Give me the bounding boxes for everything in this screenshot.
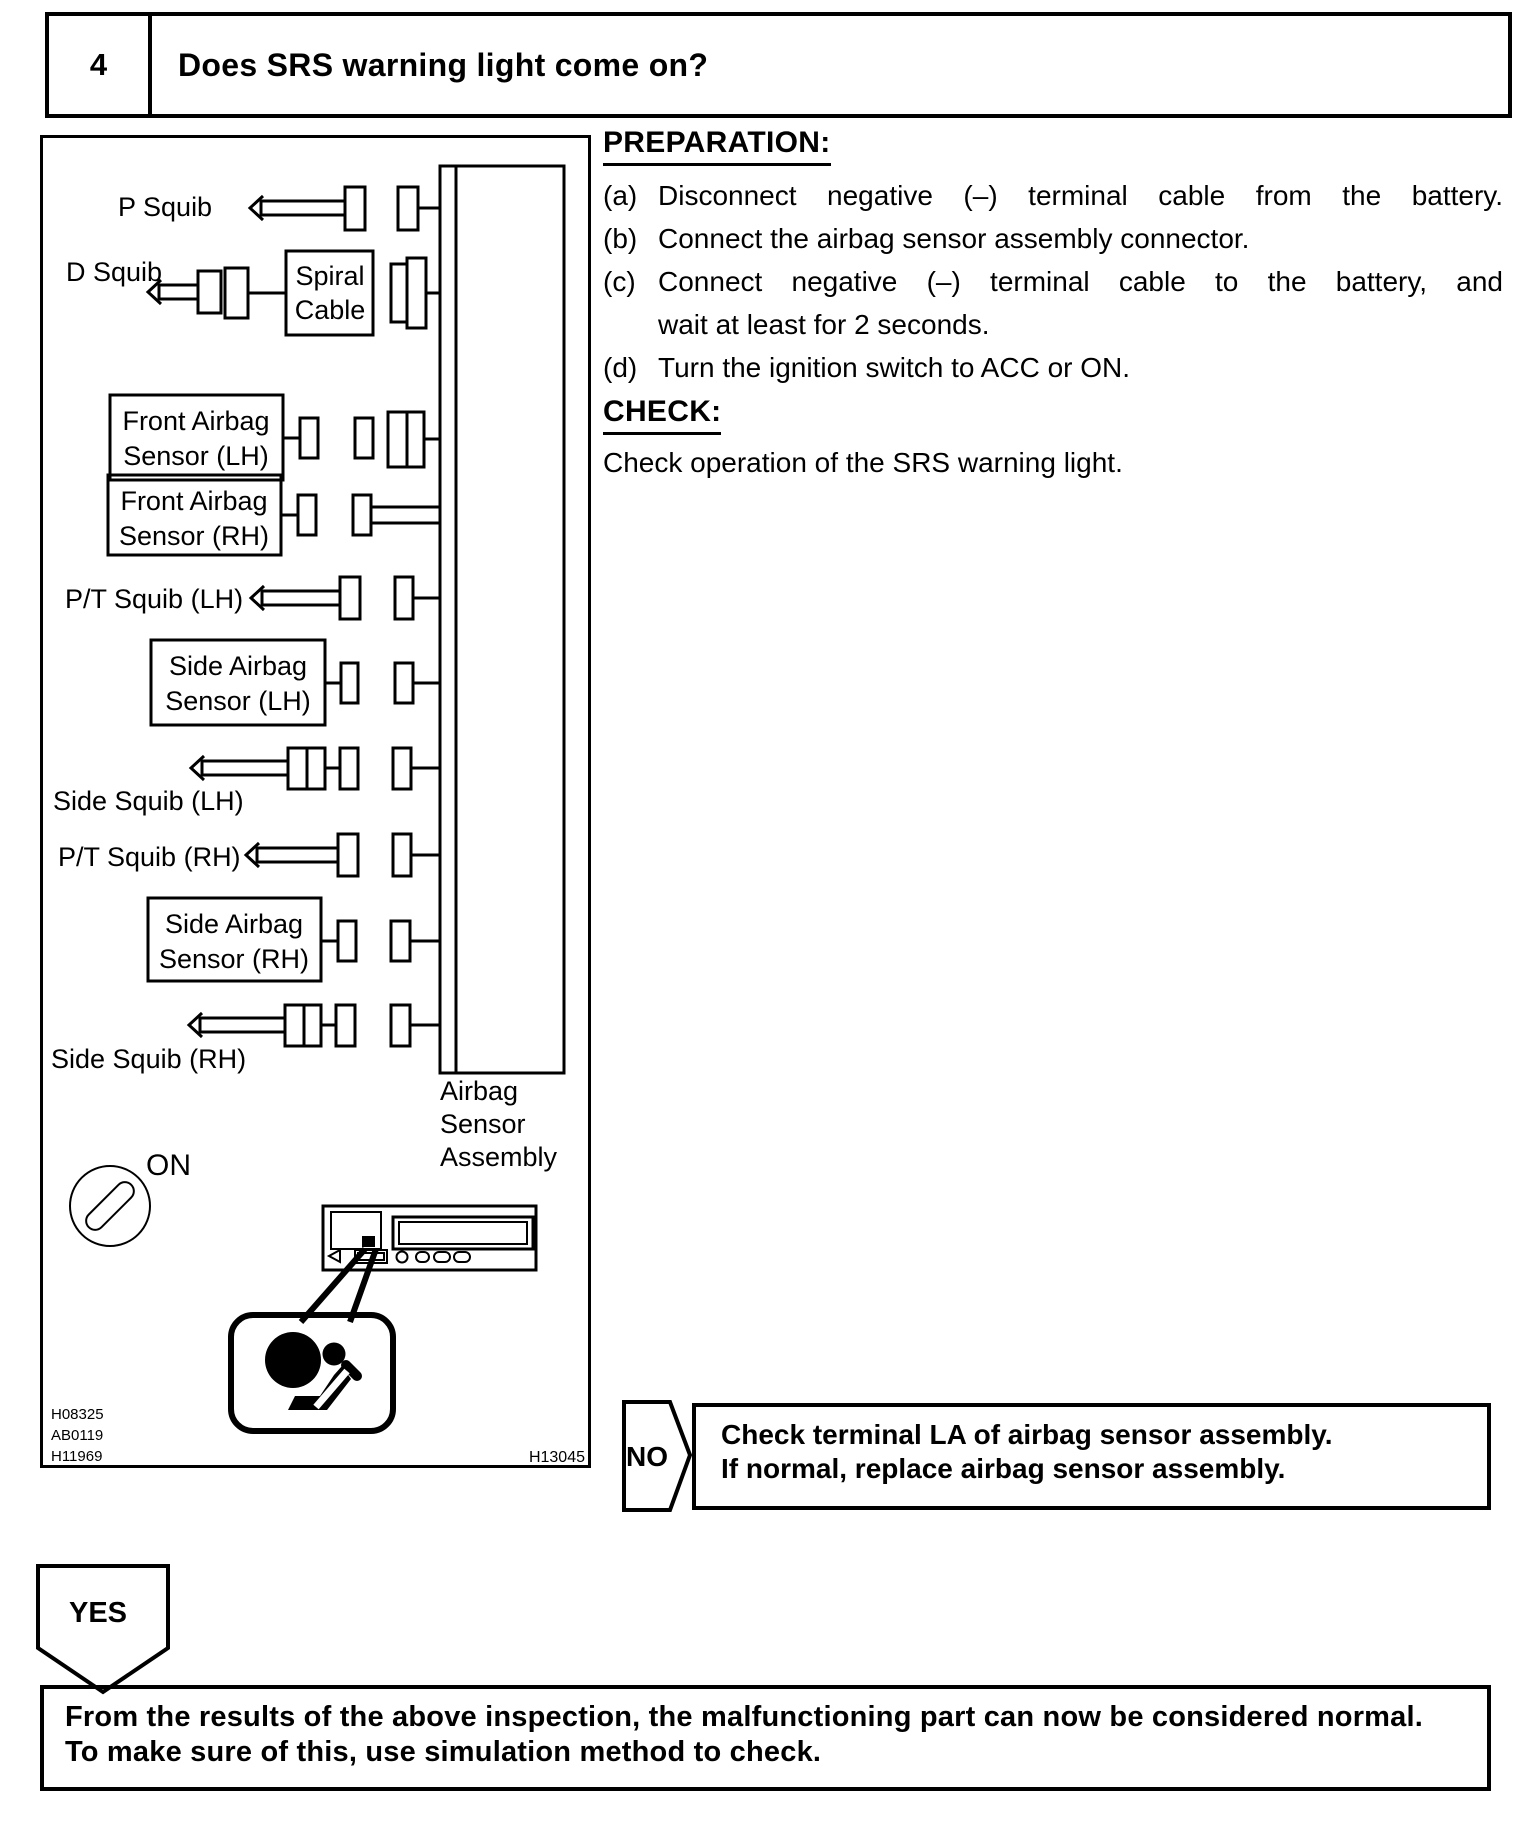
side-airbag-sensor-rh-row: Side Airbag Sensor (RH) xyxy=(148,898,440,981)
side-airbag-sensor-lh-line2: Sensor (LH) xyxy=(165,686,311,716)
preparation-title: PREPARATION: xyxy=(603,126,831,166)
pt-squib-rh-label: P/T Squib (RH) xyxy=(58,842,241,872)
pt-squib-lh-row: P/T Squib (LH) xyxy=(65,577,440,619)
conclusion-line2: To make sure of this, use simulation met… xyxy=(65,1735,1487,1770)
step-c-text-line2: wait at least for 2 seconds. xyxy=(658,303,1503,346)
side-squib-lh-label: Side Squib (LH) xyxy=(53,786,244,816)
step-number: 4 xyxy=(90,47,107,83)
p-squib-label: P Squib xyxy=(118,192,212,222)
side-airbag-sensor-rh-line1: Side Airbag xyxy=(165,909,303,939)
step-b-label: (b) xyxy=(603,217,658,260)
front-airbag-sensor-rh-line2: Sensor (RH) xyxy=(119,521,269,551)
step-c-text-line1: Connect negative (–) terminal cable to t… xyxy=(658,260,1503,303)
spiral-cable-label-line1: Spiral xyxy=(295,261,364,291)
step-number-box: 4 xyxy=(45,12,152,118)
front-airbag-sensor-lh-row: Front Airbag Sensor (LH) xyxy=(110,395,440,480)
yes-pentagon-icon: YES xyxy=(36,1564,172,1696)
step-a-label: (a) xyxy=(603,174,658,217)
srs-wiring-diagram-svg: P Squib D Squib Spiral Cable xyxy=(43,138,588,1465)
no-action-line2: If normal, replace airbag sensor assembl… xyxy=(721,1452,1487,1486)
spiral-cable-label-line2: Cable xyxy=(295,295,366,325)
no-action-line1: Check terminal LA of airbag sensor assem… xyxy=(721,1418,1487,1452)
ignition-on-label: ON xyxy=(146,1149,191,1182)
step-question: Does SRS warning light come on? xyxy=(178,47,708,84)
conclusion-line1: From the results of the above inspection… xyxy=(65,1700,1487,1735)
srs-wiring-diagram: P Squib D Squib Spiral Cable xyxy=(40,135,591,1468)
check-text: Check operation of the SRS warning light… xyxy=(603,441,1509,484)
side-squib-rh-row: Side Squib (RH) xyxy=(51,1005,440,1074)
d-squib-row: D Squib Spiral Cable xyxy=(66,251,440,335)
reference-code-2: AB0119 xyxy=(51,1427,103,1444)
pt-squib-rh-row: P/T Squib (RH) xyxy=(58,834,440,876)
no-action-box: Check terminal LA of airbag sensor assem… xyxy=(692,1403,1491,1510)
step-b-text: Connect the airbag sensor assembly conne… xyxy=(658,217,1503,260)
procedure-text: PREPARATION: (a) Disconnect negative (–)… xyxy=(603,126,1509,484)
no-pentagon-icon: NO xyxy=(622,1400,694,1512)
srs-warning-lamp-icon xyxy=(362,1236,375,1247)
side-squib-lh-row: Side Squib (LH) xyxy=(53,748,440,816)
d-squib-label: D Squib xyxy=(66,257,162,287)
step-a-text: Disconnect negative (–) terminal cable f… xyxy=(658,174,1503,217)
p-squib-row: P Squib xyxy=(118,187,440,230)
airbag-warning-icon xyxy=(231,1315,393,1431)
conclusion-box: From the results of the above inspection… xyxy=(40,1685,1491,1791)
side-squib-rh-label: Side Squib (RH) xyxy=(51,1044,246,1074)
step-d-text: Turn the ignition switch to ACC or ON. xyxy=(658,346,1503,389)
step-question-box: Does SRS warning light come on? xyxy=(148,12,1512,118)
preparation-steps: (a) Disconnect negative (–) terminal cab… xyxy=(603,174,1509,389)
no-label: NO xyxy=(626,1441,668,1472)
side-airbag-sensor-rh-line2: Sensor (RH) xyxy=(159,944,309,974)
yes-label: YES xyxy=(69,1597,127,1629)
airbag-sensor-assembly-caption: Airbag Sensor Assembly xyxy=(440,1076,558,1172)
yes-branch-tag: YES xyxy=(36,1564,172,1701)
no-branch-tag: NO xyxy=(622,1400,694,1517)
front-airbag-sensor-lh-line1: Front Airbag xyxy=(122,406,269,436)
assembly-caption-line3: Assembly xyxy=(440,1142,558,1172)
front-airbag-sensor-rh-row: Front Airbag Sensor (RH) xyxy=(108,475,440,555)
step-c-label: (c) xyxy=(603,260,658,346)
preparation-step-a: (a) Disconnect negative (–) terminal cab… xyxy=(603,174,1509,217)
preparation-step-b: (b) Connect the airbag sensor assembly c… xyxy=(603,217,1509,260)
check-title: CHECK: xyxy=(603,395,721,435)
pt-squib-lh-label: P/T Squib (LH) xyxy=(65,584,243,614)
manual-page: 4 Does SRS warning light come on? P Squi… xyxy=(0,0,1536,1838)
assembly-caption-line2: Sensor xyxy=(440,1109,526,1139)
front-airbag-sensor-lh-line2: Sensor (LH) xyxy=(123,441,269,471)
front-airbag-sensor-rh-line1: Front Airbag xyxy=(120,486,267,516)
reference-codes: H08325 AB0119 H11969 H13045 xyxy=(51,1406,585,1465)
side-airbag-sensor-lh-line1: Side Airbag xyxy=(169,651,307,681)
step-d-label: (d) xyxy=(603,346,658,389)
preparation-step-c: (c) Connect negative (–) terminal cable … xyxy=(603,260,1509,346)
figure-code: H13045 xyxy=(529,1449,585,1465)
reference-code-3: H11969 xyxy=(51,1448,102,1465)
ignition-key-icon: ON xyxy=(70,1149,191,1246)
reference-code-1: H08325 xyxy=(51,1406,104,1423)
preparation-step-d: (d) Turn the ignition switch to ACC or O… xyxy=(603,346,1509,389)
airbag-sensor-assembly-box xyxy=(440,166,564,1073)
side-airbag-sensor-lh-row: Side Airbag Sensor (LH) xyxy=(151,640,440,725)
assembly-caption-line1: Airbag xyxy=(440,1076,518,1106)
